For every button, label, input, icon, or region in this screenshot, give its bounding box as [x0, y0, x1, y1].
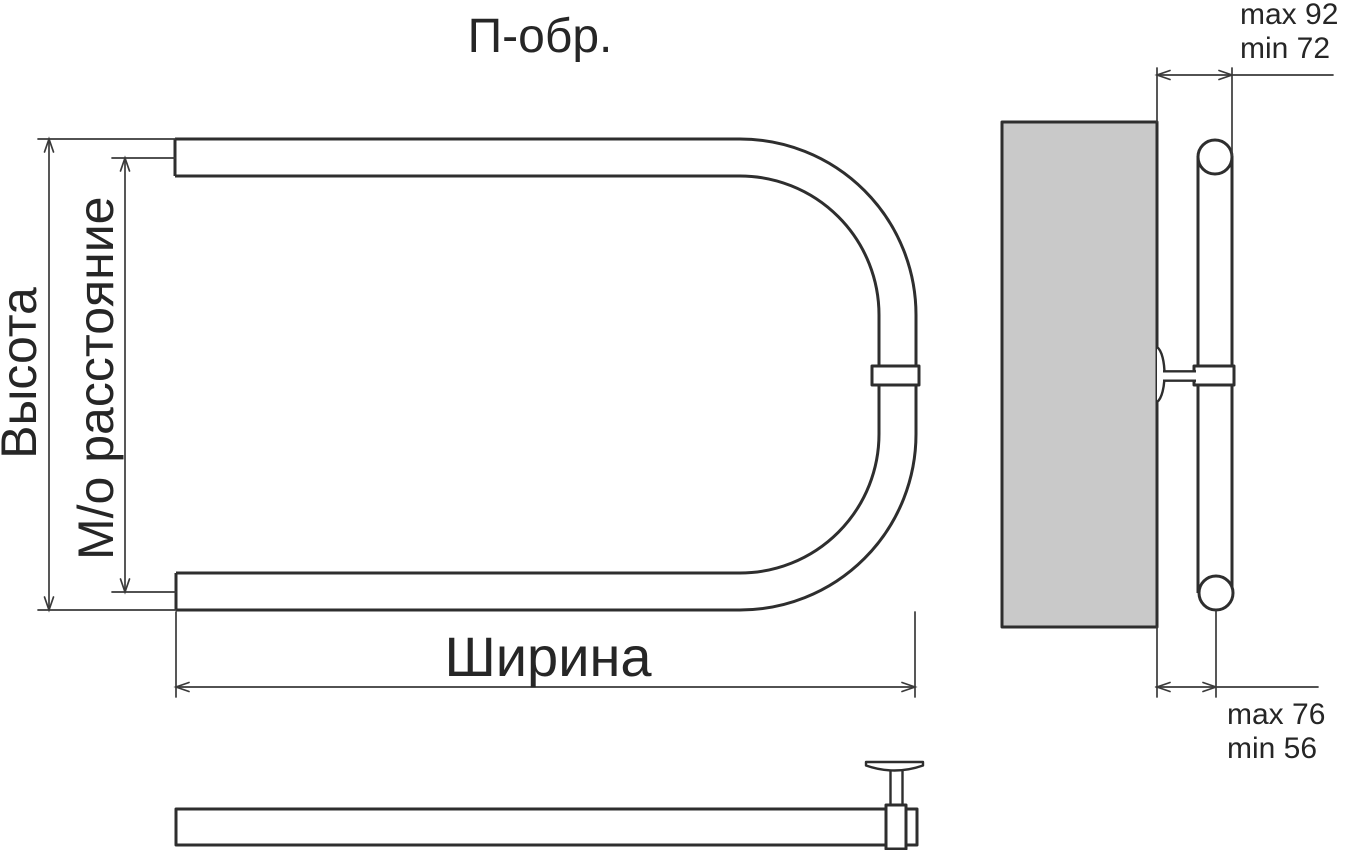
dimension-wall-offset-bottom [1156, 611, 1318, 697]
axial-distance-dimension-label: М/о расстояние [70, 200, 122, 560]
coupling-side [1194, 366, 1234, 385]
wall-offset-top-values: max 92 min 72 [1240, 0, 1338, 66]
tube-top-view [176, 809, 886, 845]
top-view [176, 762, 923, 849]
dimension-wall-offset-top [1157, 68, 1333, 156]
diagram-canvas: П-обр. Высота М/о расстояние Ширина max … [0, 0, 1349, 850]
top-tube-section [1198, 140, 1232, 174]
bottom-tube-section [1199, 576, 1233, 610]
towel-rail-tube-front [175, 139, 919, 610]
front-view [38, 139, 919, 697]
height-dimension-label: Высота [0, 283, 45, 463]
bracket-flange-disc [866, 762, 923, 771]
towel-rail-tube-side [1194, 140, 1234, 610]
wall-bracket-side [1157, 347, 1196, 402]
wall-bracket-top-view [866, 762, 923, 805]
diagram-title: П-обр. [400, 12, 680, 62]
end-cap-top-view [906, 809, 917, 845]
side-view [1002, 68, 1333, 697]
wall-offset-bottom-min: min 56 [1227, 732, 1325, 766]
wall-offset-bottom-values: max 76 min 56 [1227, 698, 1325, 766]
wall-section [1002, 122, 1157, 627]
wall-offset-top-max: max 92 [1240, 0, 1338, 32]
width-dimension-label: Ширина [408, 629, 688, 685]
coupling-front [872, 366, 919, 385]
wall-offset-top-min: min 72 [1240, 32, 1338, 66]
drawing-svg [0, 0, 1349, 850]
wall-offset-bottom-max: max 76 [1227, 698, 1325, 732]
coupling-top-view [886, 805, 906, 849]
